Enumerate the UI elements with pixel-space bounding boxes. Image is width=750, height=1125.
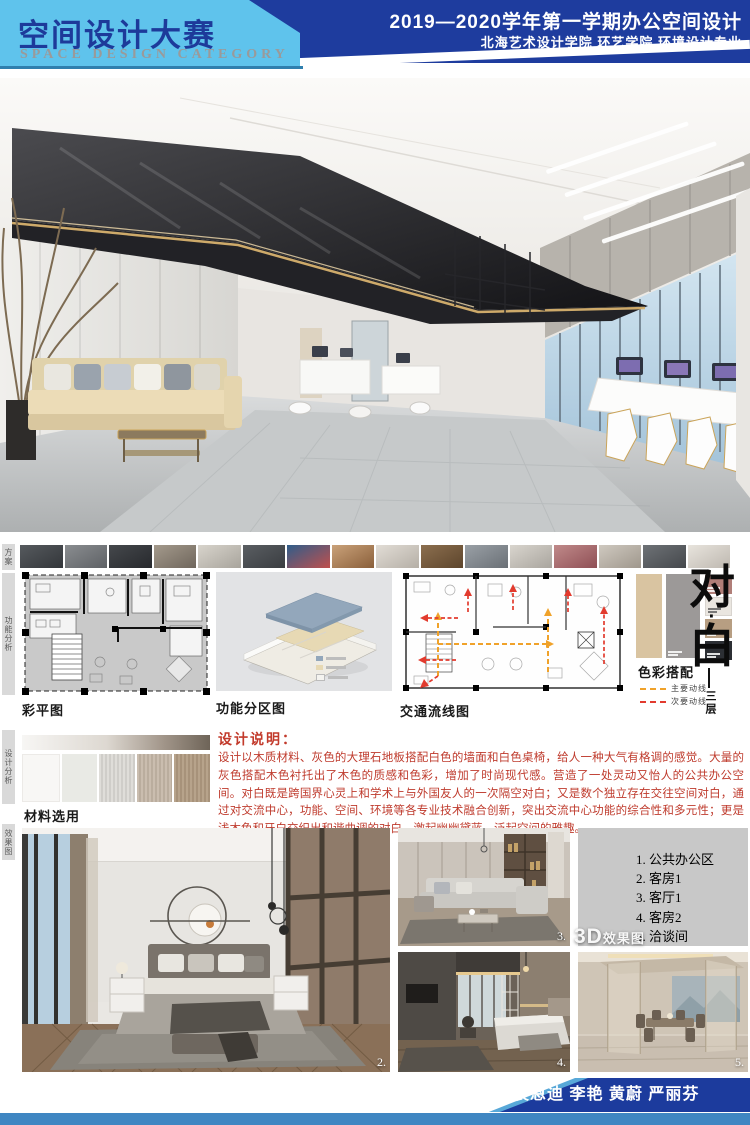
render-index-list: 1. 公共办公区 2. 客房1 3. 客厅1 4. 客房2 5. 洽谈间	[636, 850, 714, 946]
circulation-legend: 主要动线 次要动线	[640, 682, 707, 708]
meeting-room-image	[578, 952, 748, 1072]
footer-members-label: 组员：袁恩迪 李艳 黄蔚 严丽芬	[462, 1078, 699, 1112]
hero-office-render	[0, 78, 750, 532]
thumbnail-strip	[20, 545, 730, 568]
thumbnail-image	[109, 545, 152, 568]
thumbnail-image	[510, 545, 553, 568]
render-number: 5.	[735, 1055, 744, 1070]
material-swatches	[22, 754, 210, 802]
sidebar-tab-renderings: 效果图	[2, 824, 15, 860]
render-guestroom-2: 4.	[398, 952, 570, 1072]
hero-render-image	[0, 78, 750, 532]
zoning-legend-swatch	[316, 674, 325, 681]
render-number: 3.	[557, 929, 566, 944]
thumbnail-image	[599, 545, 642, 568]
zoning-legend-label-bar	[326, 666, 346, 669]
zoning-axon-drawing	[216, 572, 392, 691]
caption-circulation: 交通流线图	[400, 701, 470, 720]
footer-bottom-strip	[0, 1113, 750, 1125]
zoning-diagram-panel	[216, 572, 392, 691]
design-competition-poster: 空间设计大赛 SPACE DESIGN CATEGORY 2019—2020学年…	[0, 0, 750, 1125]
material-swatch	[99, 754, 135, 802]
thumbnail-image	[287, 545, 330, 568]
design-description-heading: 设计说明：	[218, 729, 298, 749]
material-swatch	[174, 754, 210, 802]
livingroom-1-image	[398, 828, 570, 946]
guestroom-1-image	[22, 828, 390, 1072]
label-3d-text: 3D	[574, 925, 603, 948]
course-title: 2019—2020学年第一学期办公空间设计	[280, 7, 742, 34]
thumbnail-image	[465, 545, 508, 568]
competition-title-en: SPACE DESIGN CATEGORY	[20, 47, 289, 63]
render-index-item: 5. 洽谈间	[636, 927, 714, 946]
floor-tag: 三层	[702, 668, 716, 716]
zoning-legend-label-bar	[328, 676, 348, 679]
material-swatch	[137, 754, 173, 802]
header-underline	[0, 66, 303, 69]
zoning-legend-label-bar	[326, 657, 346, 660]
thumbnail-image	[332, 545, 375, 568]
caption-color-plan: 彩平图	[22, 700, 64, 719]
caption-zoning: 功能分区图	[216, 698, 286, 717]
theme-char-bottom: 白	[676, 623, 748, 670]
render-index-item: 1. 公共办公区	[636, 850, 714, 869]
label-3d-suffix: 效果图	[603, 931, 645, 946]
design-description-body: 设计以木质材料、灰色的大理石地板搭配白色的墙面和白色桌椅，给人一种大气有格调的感…	[218, 750, 744, 839]
render-index-item: 2. 客房1	[636, 869, 714, 888]
render-number: 2.	[377, 1055, 386, 1070]
material-swatch	[62, 754, 98, 802]
render-index-item: 4. 客房2	[636, 908, 714, 927]
thumbnail-image	[65, 545, 108, 568]
thumbnail-image	[243, 545, 286, 568]
sidebar-tab-design-analysis: 设计分析	[2, 730, 15, 804]
caption-materials: 材料选用	[24, 806, 80, 825]
material-swatch	[22, 754, 60, 802]
renders-section-label: 3D效果图	[574, 925, 645, 949]
floor-tag-line	[708, 668, 710, 688]
legend-dash-secondary	[640, 701, 666, 703]
render-number: 4.	[557, 1055, 566, 1070]
zoning-legend-swatch	[316, 656, 323, 661]
project-theme-title: 对 · 白	[676, 564, 748, 670]
thumbnail-image	[20, 545, 63, 568]
color-floor-plan-drawing	[20, 572, 212, 696]
legend-main-route: 主要动线	[640, 682, 707, 695]
render-livingroom-1: 3.	[398, 828, 570, 946]
legend-secondary-route: 次要动线	[640, 695, 707, 708]
circulation-plan	[398, 572, 628, 694]
thumbnail-image	[154, 545, 197, 568]
sidebar-tab-function-analysis: 功能分析	[2, 573, 15, 695]
render-meeting-room: 5.	[578, 952, 748, 1072]
floor-tag-text: 三层	[702, 690, 718, 716]
theme-char-top: 对	[676, 564, 748, 611]
palette-swatch-tan	[636, 574, 662, 658]
guestroom-2-image	[398, 952, 570, 1072]
school-info: 北海艺术设计学院 环艺学院 环境设计专业	[280, 32, 742, 51]
material-gradient-bar	[22, 735, 210, 750]
color-floor-plan	[20, 572, 212, 696]
footer-class-label: 班级：环本1707	[302, 1078, 427, 1112]
render-index-item: 3. 客厅1	[636, 888, 714, 907]
thumbnail-image	[198, 545, 241, 568]
zoning-legend-item	[316, 656, 346, 661]
zoning-legend-item	[316, 674, 348, 681]
sidebar-tab-intent: 方案意向	[2, 544, 15, 570]
circulation-plan-drawing	[398, 572, 628, 694]
thumbnail-image	[421, 545, 464, 568]
zoning-legend-item	[316, 665, 346, 670]
legend-dash-main	[640, 688, 666, 690]
render-guestroom-1: 2.	[22, 828, 390, 1072]
thumbnail-image	[376, 545, 419, 568]
zoning-legend-swatch	[316, 665, 323, 670]
thumbnail-image	[554, 545, 597, 568]
